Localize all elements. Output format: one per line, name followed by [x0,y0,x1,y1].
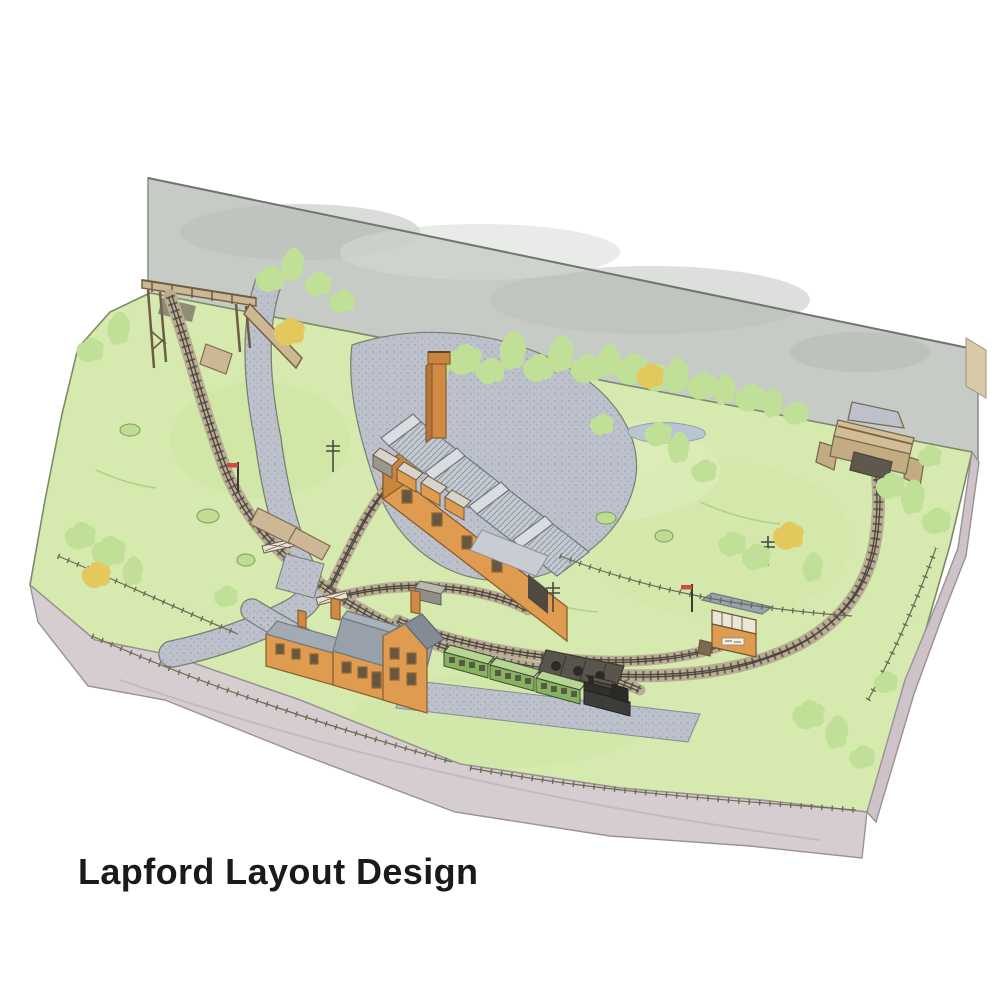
illustration-svg [0,0,1000,1000]
station-chimney [411,590,420,614]
signal-box-steps [698,640,712,656]
signal-arm [681,585,692,590]
layout-illustration: Lapford Layout Design [0,0,1000,1000]
station-chimney [298,610,306,628]
station-chimney [331,598,340,620]
signal-arm [227,463,238,468]
page-title: Lapford Layout Design [78,851,478,893]
factory-chimney [426,352,450,442]
